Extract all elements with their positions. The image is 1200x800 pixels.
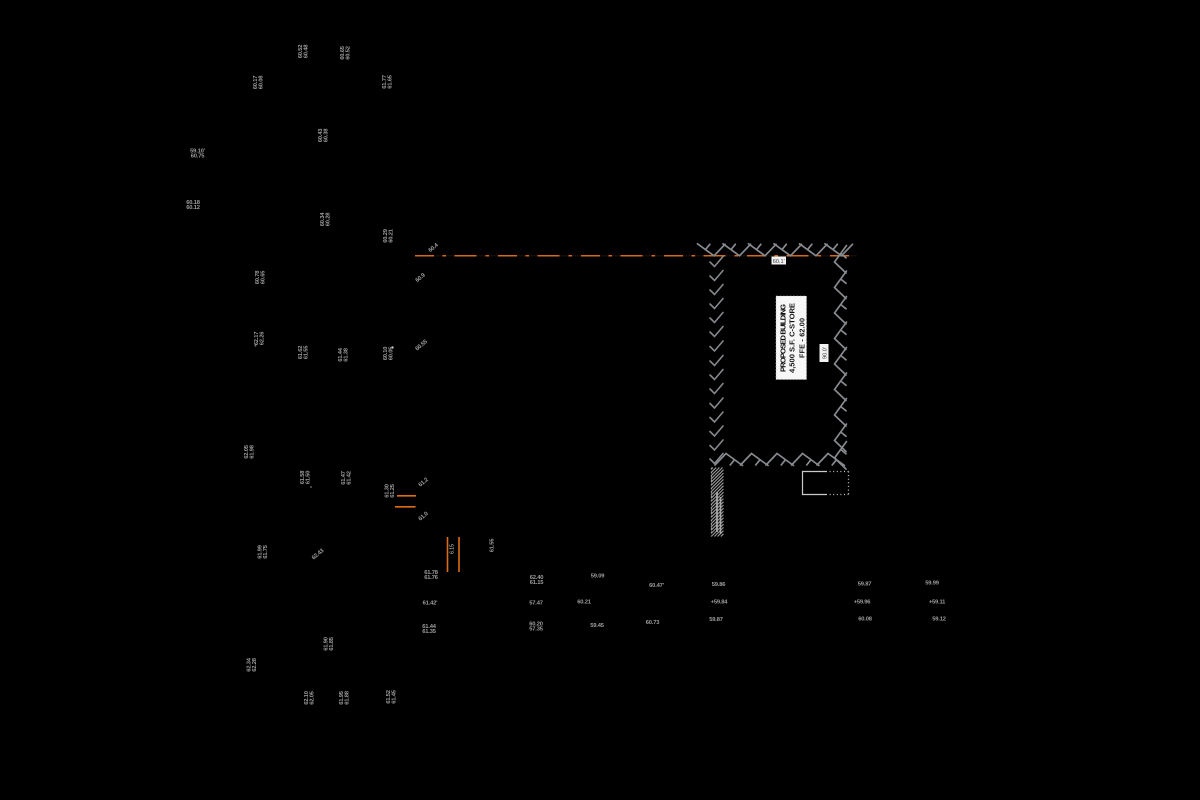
svg-text:61.55: 61.55: [303, 345, 309, 359]
svg-text:61.65: 61.65: [387, 74, 393, 88]
svg-text:61.42: 61.42: [346, 471, 352, 485]
svg-text:59.99: 59.99: [925, 581, 939, 587]
svg-text:59.86: 59.86: [712, 582, 726, 588]
svg-text:61.15: 61.15: [530, 580, 544, 586]
svg-text:61.50: 61.50: [305, 471, 311, 485]
svg-text:60.48: 60.48: [303, 44, 309, 58]
svg-text:FFE - 62.00: FFE - 62.00: [798, 318, 807, 358]
svg-text:60.28: 60.28: [325, 212, 331, 226]
svg-text:61.98: 61.98: [249, 444, 255, 458]
svg-text:62.28: 62.28: [252, 657, 258, 671]
svg-text:61.35: 61.35: [422, 629, 436, 635]
svg-text:59.87: 59.87: [858, 582, 872, 588]
svg-text:57.47: 57.47: [529, 601, 543, 607]
svg-text:60.52: 60.52: [345, 46, 351, 60]
svg-text:59.12: 59.12: [932, 617, 946, 623]
svg-text:61.25: 61.25: [390, 483, 396, 497]
svg-text:61.75: 61.75: [263, 544, 269, 558]
svg-text:+59.84: +59.84: [711, 600, 729, 606]
svg-text:60.73: 60.73: [646, 620, 660, 626]
svg-text:57.35: 57.35: [529, 627, 543, 633]
svg-text:61.76: 61.76: [424, 575, 438, 581]
svg-text:61.45: 61.45: [391, 689, 397, 703]
svg-text:61.88: 61.88: [344, 690, 350, 704]
svg-text:62.26: 62.26: [259, 331, 265, 345]
svg-text:59.45: 59.45: [590, 623, 604, 629]
svg-text:60.08: 60.08: [858, 617, 872, 623]
svg-text:60.08: 60.08: [258, 75, 264, 89]
svg-text:59.09: 59.09: [591, 574, 605, 580]
svg-text:61.38: 61.38: [343, 347, 349, 361]
svg-text:4,500 S.F. C-STORE: 4,500 S.F. C-STORE: [788, 303, 797, 373]
svg-text:60.38: 60.38: [323, 128, 329, 142]
svg-text:61.85: 61.85: [329, 636, 335, 650]
svg-text:60.21: 60.21: [388, 228, 394, 242]
svg-text:61.42': 61.42': [423, 601, 439, 607]
svg-text:60.05: 60.05: [388, 346, 394, 360]
svg-text:90.0': 90.0': [823, 347, 829, 359]
svg-text:60.47': 60.47': [649, 583, 665, 589]
svg-text:+59.11: +59.11: [929, 600, 946, 606]
svg-text:+59.96: +59.96: [854, 600, 872, 606]
svg-text:60.12: 60.12: [186, 205, 200, 211]
svg-text:6.15: 6.15: [450, 544, 456, 554]
svg-text:60.75: 60.75: [191, 154, 205, 160]
svg-text:60.21: 60.21: [577, 600, 591, 606]
svg-text:59.87: 59.87: [709, 617, 723, 623]
svg-text:60.1': 60.1': [773, 259, 785, 265]
svg-text:61.55: 61.55: [490, 538, 496, 552]
svg-text:PROPOSED BUILDING: PROPOSED BUILDING: [779, 304, 788, 372]
svg-text:60.65: 60.65: [260, 270, 266, 284]
svg-text:62.05: 62.05: [309, 690, 315, 704]
